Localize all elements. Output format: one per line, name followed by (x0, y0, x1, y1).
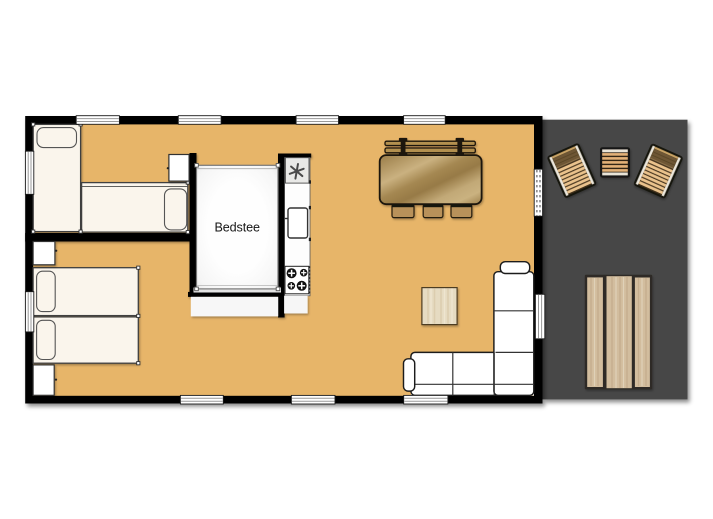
svg-text:Bedstee: Bedstee (214, 221, 260, 235)
